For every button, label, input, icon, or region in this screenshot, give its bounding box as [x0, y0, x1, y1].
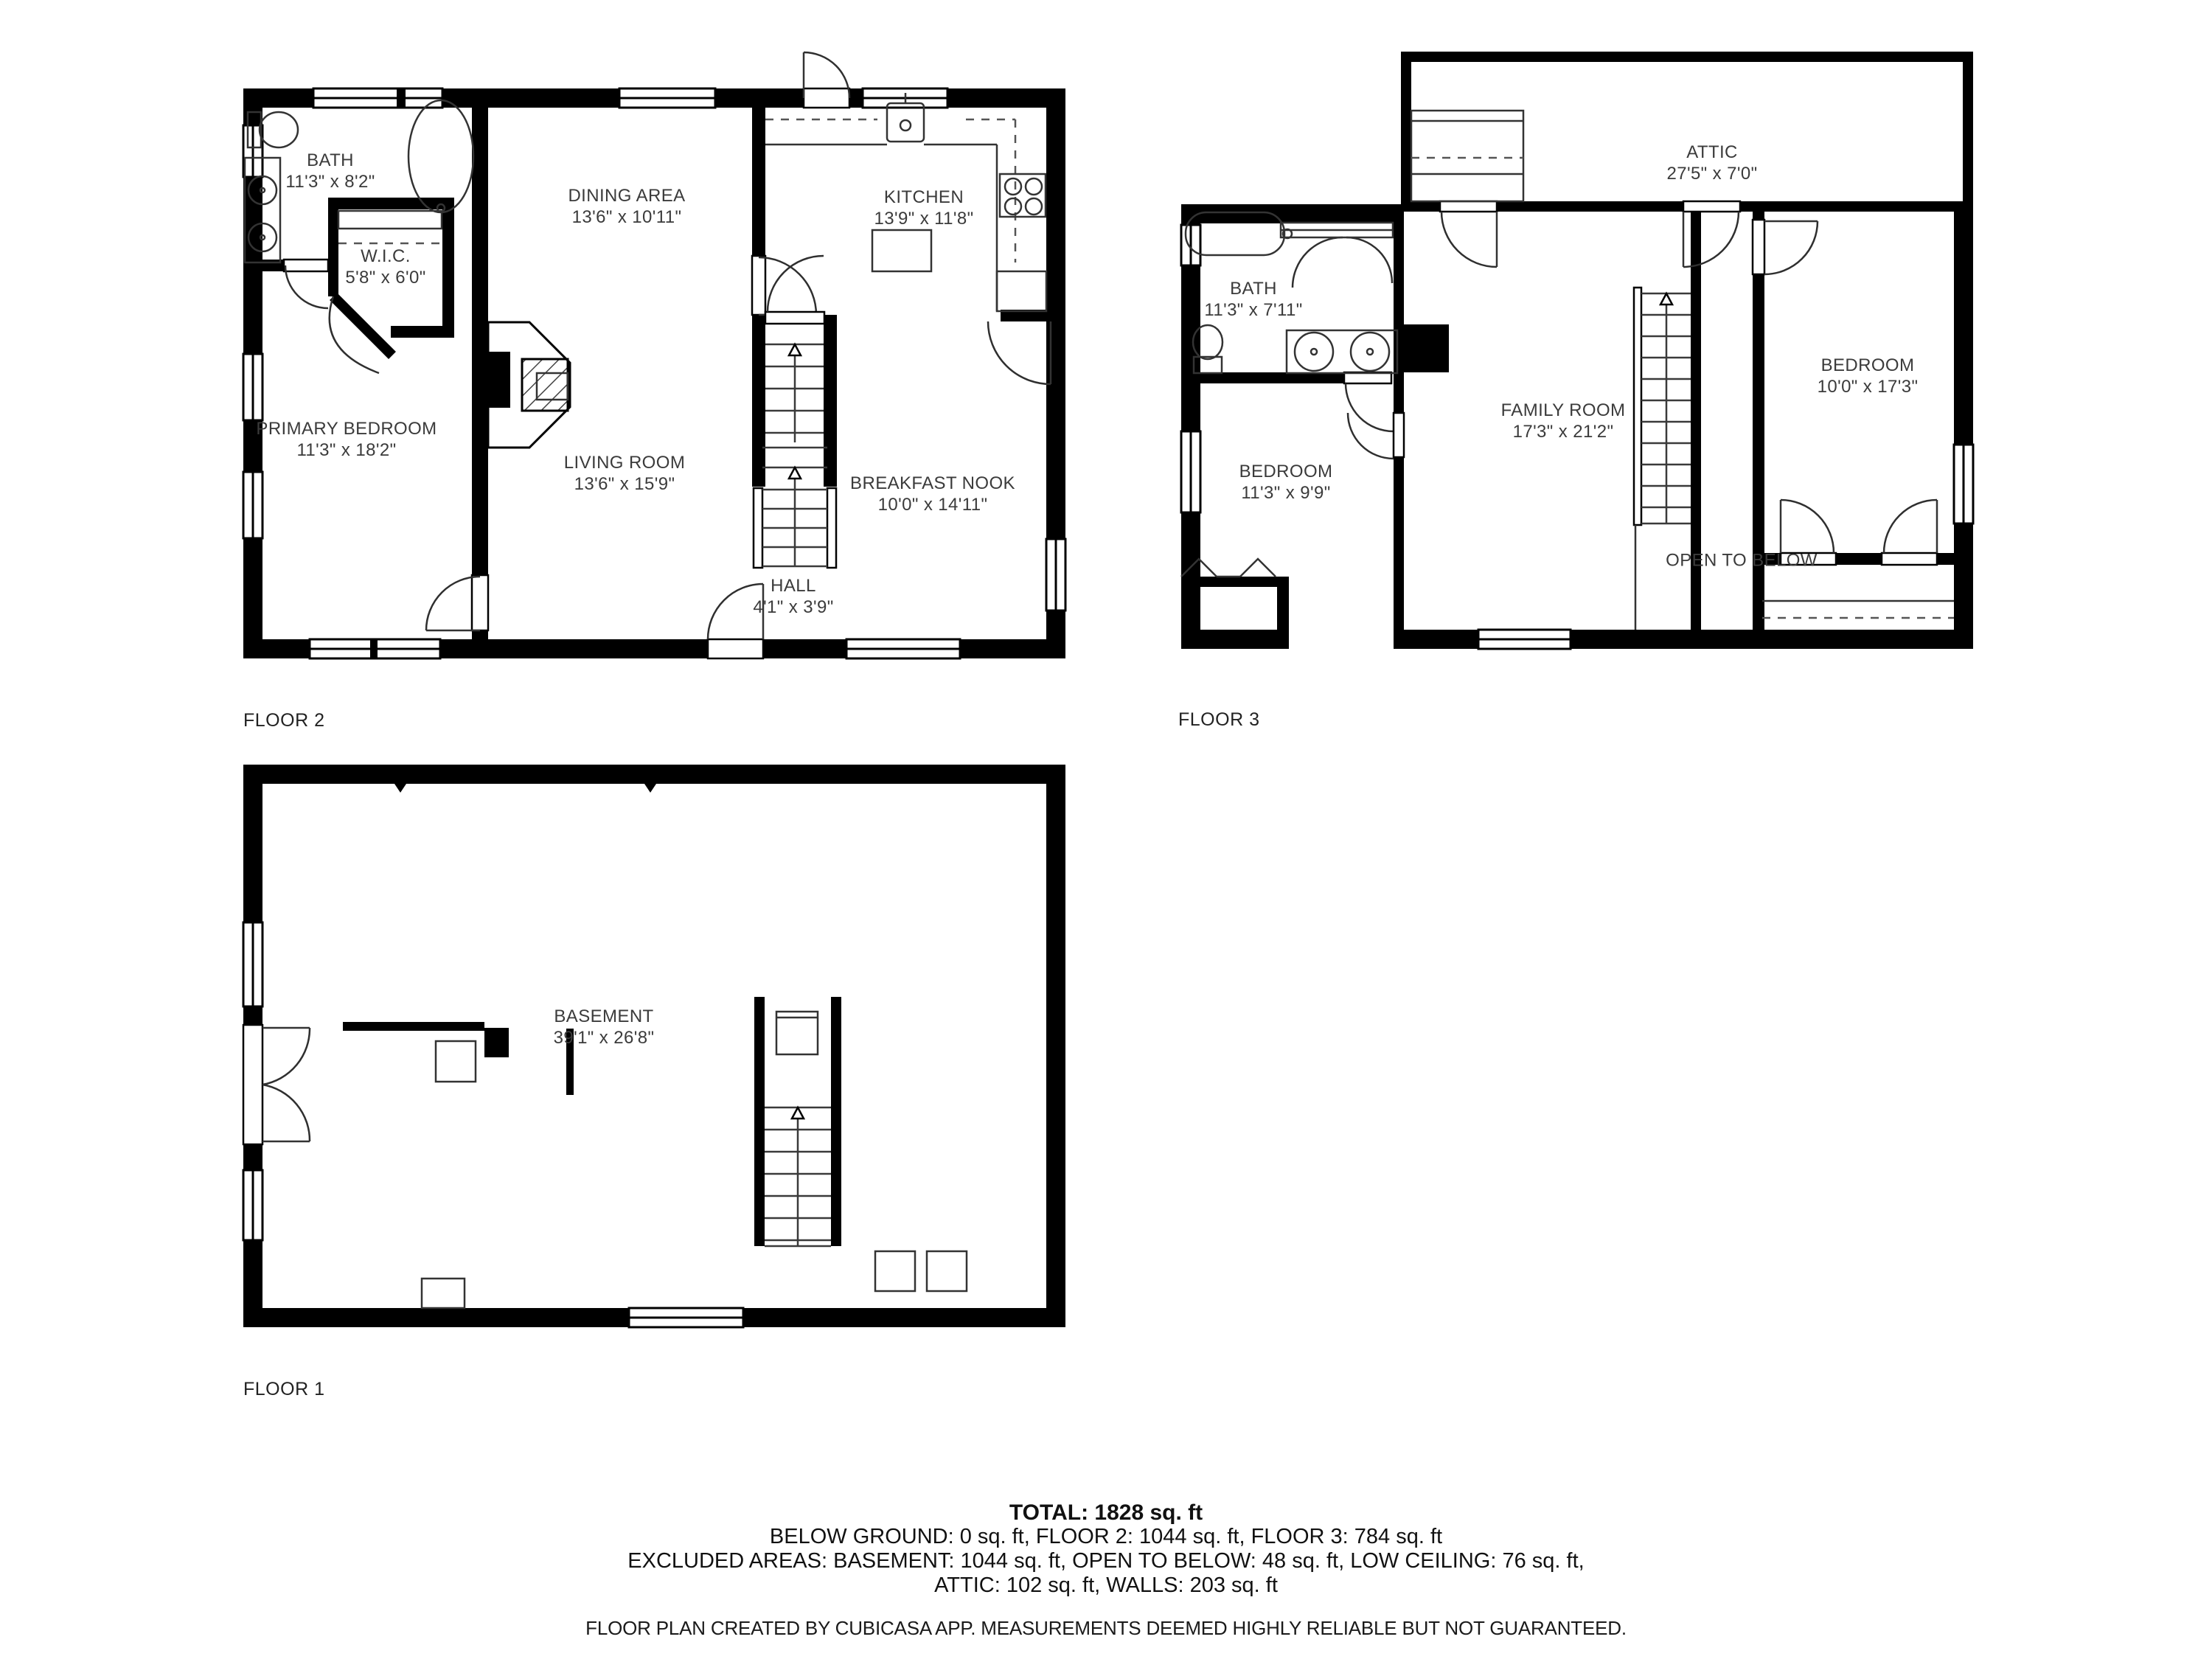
room-label-living-room-f2: LIVING ROOM 13'6" x 15'9" — [564, 452, 685, 495]
room-dims: 10'0" x 17'3" — [1818, 376, 1919, 397]
room-label-primary-bedroom-f2: PRIMARY BEDROOM 11'3" x 18'2" — [256, 418, 437, 461]
room-name: ATTIC — [1686, 142, 1738, 162]
room-dims: 11'3" x 8'2" — [285, 171, 375, 192]
floor1-tag: FLOOR 1 — [243, 1379, 324, 1400]
floor2-doors — [284, 52, 1051, 658]
room-name: KITCHEN — [884, 187, 964, 207]
room-label-breakfast-nook-f2: BREAKFAST NOOK 10'0" x 14'11" — [850, 473, 1015, 515]
room-name: PRIMARY BEDROOM — [256, 419, 437, 439]
room-dims: 13'9" x 11'8" — [874, 208, 973, 229]
room-dims: 4'1" x 3'9" — [753, 597, 833, 618]
room-dims: 11'3" x 18'2" — [256, 439, 437, 461]
floor-plan-drawing — [0, 0, 2212, 1659]
floor2-tag: FLOOR 2 — [243, 710, 324, 731]
summary-line-excluded: EXCLUDED AREAS: BASEMENT: 1044 sq. ft, O… — [0, 1549, 2212, 1573]
area-summary: TOTAL: 1828 sq. ft BELOW GROUND: 0 sq. f… — [0, 1500, 2212, 1598]
room-name: BEDROOM — [1821, 355, 1915, 375]
floor3-walls — [1181, 52, 1973, 649]
room-label-basement-f1: BASEMENT 39'1" x 26'8" — [554, 1006, 655, 1048]
room-label-bedroom-small-f3: BEDROOM 11'3" x 9'9" — [1239, 461, 1333, 504]
room-dims: 39'1" x 26'8" — [554, 1027, 655, 1048]
room-label-bath-f2: BATH 11'3" x 8'2" — [285, 150, 375, 192]
room-label-bath-f3: BATH 11'3" x 7'11" — [1204, 278, 1302, 321]
room-name: LIVING ROOM — [564, 453, 685, 473]
floor1-doors — [243, 1025, 310, 1144]
room-label-dining-f2: DINING AREA 13'6" x 10'11" — [568, 185, 685, 228]
floor-plan-document: BATH 11'3" x 8'2" W.I.C. 5'8" x 6'0" DIN… — [0, 0, 2212, 1659]
room-dims: 13'6" x 15'9" — [564, 473, 685, 495]
room-label-attic-f3: ATTIC 27'5" x 7'0" — [1666, 142, 1757, 184]
room-name: HALL — [771, 576, 816, 596]
floor2-plan — [243, 52, 1065, 658]
room-label-wic-f2: W.I.C. 5'8" x 6'0" — [345, 246, 425, 288]
room-name: BASEMENT — [554, 1006, 653, 1026]
floor1-plan — [243, 765, 1065, 1327]
summary-line-floors: BELOW GROUND: 0 sq. ft, FLOOR 2: 1044 sq… — [0, 1525, 2212, 1549]
room-name: BREAKFAST NOOK — [850, 473, 1015, 493]
room-label-open-to-below-f3: OPEN TO BELOW — [1666, 550, 1818, 571]
room-dims: 11'3" x 9'9" — [1239, 482, 1333, 504]
floor3-tag: FLOOR 3 — [1178, 709, 1259, 731]
room-dims: 5'8" x 6'0" — [345, 267, 425, 288]
room-dims: 10'0" x 14'11" — [850, 494, 1015, 515]
room-label-family-room-f3: FAMILY ROOM 17'3" x 21'2" — [1501, 400, 1626, 442]
floor1-fixtures — [422, 1041, 967, 1308]
room-dims: 11'3" x 7'11" — [1204, 299, 1302, 321]
room-name: FAMILY ROOM — [1501, 400, 1626, 420]
floor3-stairs — [1634, 288, 1691, 630]
room-label-hall-f2: HALL 4'1" x 3'9" — [753, 575, 833, 618]
disclaimer-text: FLOOR PLAN CREATED BY CUBICASA APP. MEAS… — [0, 1617, 2212, 1640]
room-name: DINING AREA — [568, 186, 685, 206]
room-label-kitchen-f2: KITCHEN 13'9" x 11'8" — [874, 187, 973, 229]
floor1-walls — [243, 765, 1065, 1327]
room-name: BATH — [1230, 279, 1277, 299]
room-name: OPEN TO BELOW — [1666, 551, 1818, 571]
floor1-windows — [243, 922, 743, 1327]
room-label-bedroom-right-f3: BEDROOM 10'0" x 17'3" — [1818, 355, 1919, 397]
summary-line-attic-walls: ATTIC: 102 sq. ft, WALLS: 203 sq. ft — [0, 1573, 2212, 1598]
room-dims: 27'5" x 7'0" — [1666, 163, 1757, 184]
room-dims: 13'6" x 10'11" — [568, 206, 685, 228]
room-dims: 17'3" x 21'2" — [1501, 421, 1626, 442]
room-name: BEDROOM — [1239, 462, 1333, 481]
room-name: W.I.C. — [361, 246, 411, 266]
summary-total: TOTAL: 1828 sq. ft — [0, 1500, 2212, 1525]
floor3-plan — [1181, 52, 1973, 649]
floor1-stairs — [765, 1012, 831, 1246]
room-name: BATH — [307, 150, 354, 170]
